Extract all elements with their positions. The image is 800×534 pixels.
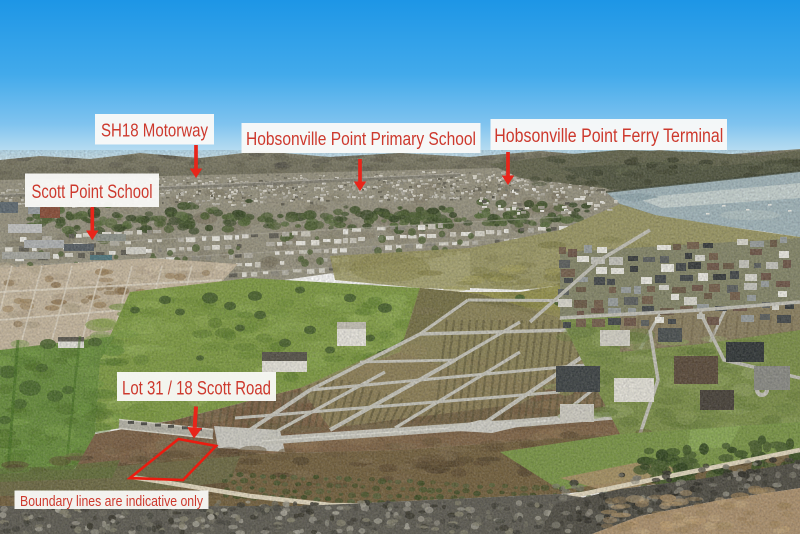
svg-text:Boundary lines are indicative: Boundary lines are indicative only [20,493,203,510]
svg-text:Scott Point School: Scott Point School [32,182,153,203]
svg-text:Lot 31 / 18 Scott Road: Lot 31 / 18 Scott Road [122,377,271,399]
svg-text:Hobsonville Point Primary Scho: Hobsonville Point Primary School [246,129,476,149]
svg-text:Hobsonville Point Ferry Termin: Hobsonville Point Ferry Terminal [494,126,723,147]
svg-text:SH18 Motorway: SH18 Motorway [101,120,208,140]
